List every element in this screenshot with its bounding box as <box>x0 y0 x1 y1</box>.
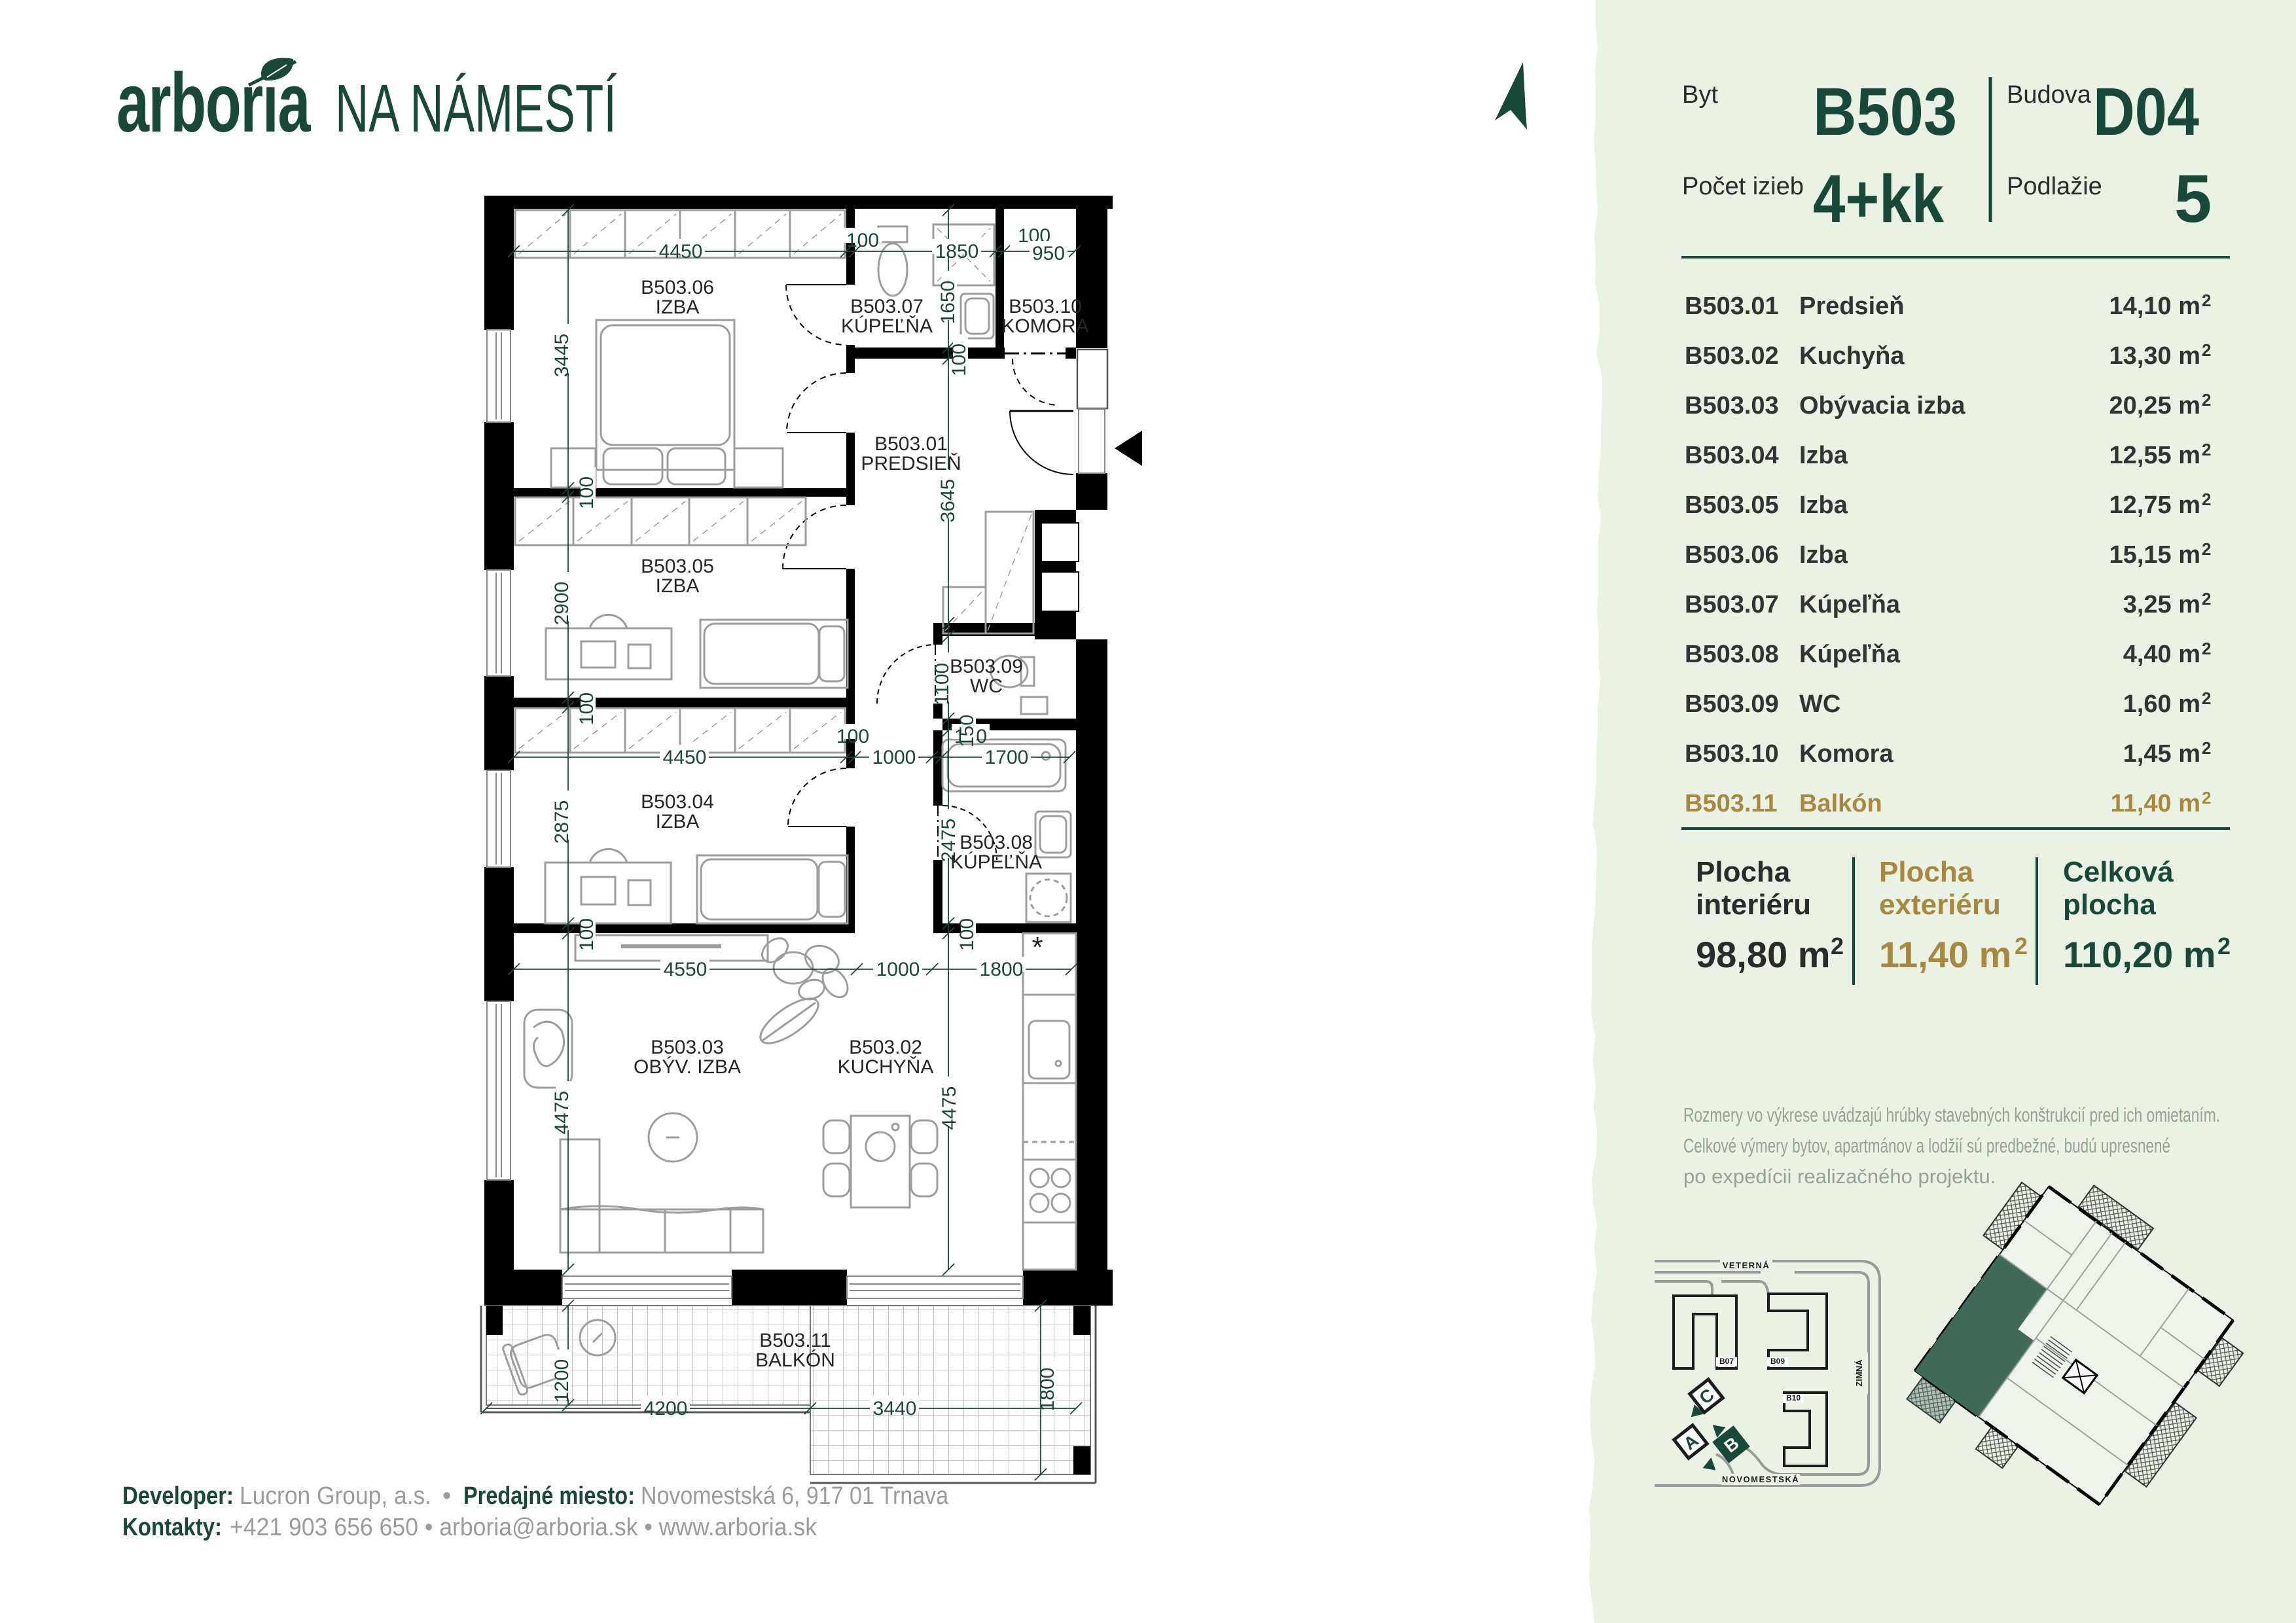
svg-text:KOMORA: KOMORA <box>1001 315 1088 337</box>
svg-text:2: 2 <box>2202 490 2211 509</box>
svg-text:1850: 1850 <box>935 241 979 262</box>
svg-text:B07: B07 <box>1719 1357 1734 1366</box>
svg-text:PREDSIEŇ: PREDSIEŇ <box>861 453 961 474</box>
svg-text:2: 2 <box>2202 738 2211 758</box>
svg-text:D04: D04 <box>2093 74 2199 149</box>
svg-text:Predsieň: Predsieň <box>1799 293 1905 320</box>
svg-text:12,75 m: 12,75 m <box>2109 491 2200 519</box>
svg-text:2: 2 <box>2202 340 2211 360</box>
svg-text:B503.11: B503.11 <box>1685 790 1778 817</box>
svg-text:14,10 m: 14,10 m <box>2109 293 2200 320</box>
svg-text:1200: 1200 <box>551 1359 573 1403</box>
svg-text:100: 100 <box>836 726 869 747</box>
svg-text:VETERNÁ: VETERNÁ <box>1723 1260 1770 1270</box>
svg-text:NOVOMESTSKÁ: NOVOMESTSKÁ <box>1722 1474 1799 1484</box>
svg-text:IZBA: IZBA <box>656 575 700 597</box>
svg-text:Komora: Komora <box>1799 740 1893 768</box>
svg-text:2: 2 <box>2202 589 2211 609</box>
svg-text:3445: 3445 <box>551 334 573 378</box>
svg-text:2: 2 <box>2202 688 2211 708</box>
svg-text:KÚPEĽŇA: KÚPEĽŇA <box>950 851 1042 873</box>
svg-text:2: 2 <box>2202 639 2211 658</box>
svg-text:4200: 4200 <box>644 1398 688 1419</box>
svg-text:2: 2 <box>2202 440 2211 459</box>
svg-text:Budova: Budova <box>2007 81 2092 109</box>
svg-text:1650: 1650 <box>937 281 959 325</box>
svg-text:2: 2 <box>2202 788 2211 808</box>
svg-text:IZBA: IZBA <box>656 811 700 832</box>
svg-text:B503.09: B503.09 <box>1685 690 1779 718</box>
svg-text:Kúpeľňa: Kúpeľňa <box>1799 591 1901 618</box>
svg-text:1,45 m: 1,45 m <box>2123 740 2200 768</box>
svg-text:5: 5 <box>2174 161 2212 236</box>
svg-text:4475: 4475 <box>939 1086 960 1130</box>
svg-text:1000: 1000 <box>876 959 920 980</box>
svg-text:2: 2 <box>2217 933 2231 959</box>
svg-text:B503: B503 <box>1813 74 1957 149</box>
svg-text:100: 100 <box>948 344 970 376</box>
svg-text:3,25 m: 3,25 m <box>2123 591 2200 618</box>
svg-text:4450: 4450 <box>663 747 707 768</box>
svg-text:Developer:Lucron Group, a.s.•P: Developer:Lucron Group, a.s.•Predajné mi… <box>122 1482 949 1510</box>
svg-text:2: 2 <box>2202 291 2211 310</box>
svg-text:B503.02: B503.02 <box>849 1037 922 1058</box>
svg-text:2: 2 <box>1831 933 1844 959</box>
svg-text:B503.09: B503.09 <box>950 656 1023 677</box>
svg-text:B503.06: B503.06 <box>1685 541 1779 569</box>
svg-text:exteriéru: exteriéru <box>1879 889 2001 921</box>
svg-text:4450: 4450 <box>659 241 703 262</box>
svg-text:ZIMNÁ: ZIMNÁ <box>1854 1359 1864 1387</box>
svg-text:4550: 4550 <box>664 959 708 980</box>
svg-text:950: 950 <box>1032 243 1065 264</box>
svg-text:plocha: plocha <box>2063 889 2156 921</box>
svg-text:B503.10: B503.10 <box>1685 740 1779 768</box>
svg-text:100: 100 <box>576 476 598 509</box>
svg-text:Obývacia izba: Obývacia izba <box>1799 392 1965 419</box>
svg-text:4475: 4475 <box>551 1091 573 1135</box>
svg-text:12,55 m: 12,55 m <box>2109 442 2200 469</box>
svg-text:B503.10: B503.10 <box>1009 296 1082 317</box>
svg-text:13,30 m: 13,30 m <box>2109 342 2200 370</box>
svg-text:11,40 m: 11,40 m <box>2111 790 2200 817</box>
svg-text:100: 100 <box>846 230 879 251</box>
svg-text:B09: B09 <box>1770 1357 1785 1366</box>
svg-text:2: 2 <box>2202 539 2211 559</box>
svg-text:Podlažie: Podlažie <box>2007 173 2102 200</box>
svg-text:B503.04: B503.04 <box>1685 442 1779 469</box>
svg-text:100: 100 <box>956 918 978 951</box>
svg-text:Počet izieb: Počet izieb <box>1682 173 1804 200</box>
svg-text:B503.08: B503.08 <box>1685 641 1779 668</box>
svg-text:interiéru: interiéru <box>1696 889 1811 921</box>
svg-text:B503.01: B503.01 <box>874 433 948 455</box>
svg-text:1800: 1800 <box>1037 1368 1058 1412</box>
svg-text:Kúpeľňa: Kúpeľňa <box>1799 641 1901 668</box>
svg-text:B503.08: B503.08 <box>960 832 1033 853</box>
svg-text:Plocha: Plocha <box>1696 856 1791 888</box>
svg-text:B503.03: B503.03 <box>651 1037 724 1058</box>
svg-text:WC: WC <box>1799 690 1840 718</box>
svg-text:B503.07: B503.07 <box>1685 591 1779 618</box>
svg-text:Izba: Izba <box>1799 491 1848 519</box>
svg-text:B503.01: B503.01 <box>1685 293 1779 320</box>
svg-text:110,20 m: 110,20 m <box>2063 934 2216 975</box>
svg-text:*: * <box>1031 931 1043 963</box>
svg-text:4,40 m: 4,40 m <box>2123 641 2200 668</box>
svg-text:B10: B10 <box>1786 1393 1801 1402</box>
svg-text:2875: 2875 <box>551 800 573 844</box>
svg-text:B503.05: B503.05 <box>1685 491 1779 519</box>
svg-text:Izba: Izba <box>1799 442 1848 469</box>
svg-text:4+kk: 4+kk <box>1813 161 1945 236</box>
svg-text:B503.07: B503.07 <box>850 296 924 317</box>
svg-text:1,60 m: 1,60 m <box>2123 690 2200 718</box>
svg-text:100: 100 <box>576 918 598 951</box>
svg-text:OBÝV. IZBA: OBÝV. IZBA <box>634 1056 741 1078</box>
svg-text:po expedícii realizačného proj: po expedícii realizačného projektu. <box>1683 1165 1996 1188</box>
svg-text:B503.03: B503.03 <box>1685 392 1779 419</box>
svg-text:11,40 m: 11,40 m <box>1879 934 2011 975</box>
svg-text:KUCHYŇA: KUCHYŇA <box>838 1056 934 1078</box>
svg-text:2: 2 <box>2015 933 2028 959</box>
svg-text:Byt: Byt <box>1682 81 1718 109</box>
svg-text:1700: 1700 <box>985 747 1029 768</box>
svg-text:Izba: Izba <box>1799 541 1848 569</box>
svg-text:KÚPEĽŇA: KÚPEĽŇA <box>841 315 933 337</box>
svg-text:B503.11: B503.11 <box>759 1330 831 1351</box>
svg-text:Kuchyňa: Kuchyňa <box>1799 342 1905 370</box>
svg-text:WC: WC <box>970 675 1003 697</box>
svg-text:B503.02: B503.02 <box>1685 342 1779 370</box>
svg-text:NA NÁMESTÍ: NA NÁMESTÍ <box>335 71 617 146</box>
svg-text:3645: 3645 <box>937 479 959 523</box>
svg-text:2: 2 <box>2202 390 2211 410</box>
svg-text:150: 150 <box>956 715 978 747</box>
svg-text:B503.04: B503.04 <box>641 791 714 813</box>
svg-text:Plocha: Plocha <box>1879 856 1974 888</box>
svg-text:Balkón: Balkón <box>1799 790 1882 817</box>
svg-text:IZBA: IZBA <box>656 296 700 318</box>
svg-text:BALKÓN: BALKÓN <box>755 1349 835 1371</box>
svg-text:3440: 3440 <box>873 1398 917 1419</box>
svg-text:2900: 2900 <box>551 582 573 626</box>
svg-text:1000: 1000 <box>872 747 916 768</box>
svg-text:Celková: Celková <box>2063 856 2174 888</box>
svg-text:98,80 m: 98,80 m <box>1696 934 1831 975</box>
svg-text:Rozmery vo výkrese uvádzajú hr: Rozmery vo výkrese uvádzajú hrúbky stave… <box>1683 1103 2220 1126</box>
svg-text:1800: 1800 <box>980 959 1024 980</box>
svg-text:15,15 m: 15,15 m <box>2109 541 2200 569</box>
svg-text:20,25 m: 20,25 m <box>2109 392 2200 419</box>
svg-text:B503.05: B503.05 <box>641 556 714 577</box>
svg-text:Celkové výmery bytov, apartmán: Celkové výmery bytov, apartmánov a lodži… <box>1683 1134 2170 1157</box>
svg-text:B503.06: B503.06 <box>641 277 714 298</box>
svg-text:100: 100 <box>576 692 598 725</box>
